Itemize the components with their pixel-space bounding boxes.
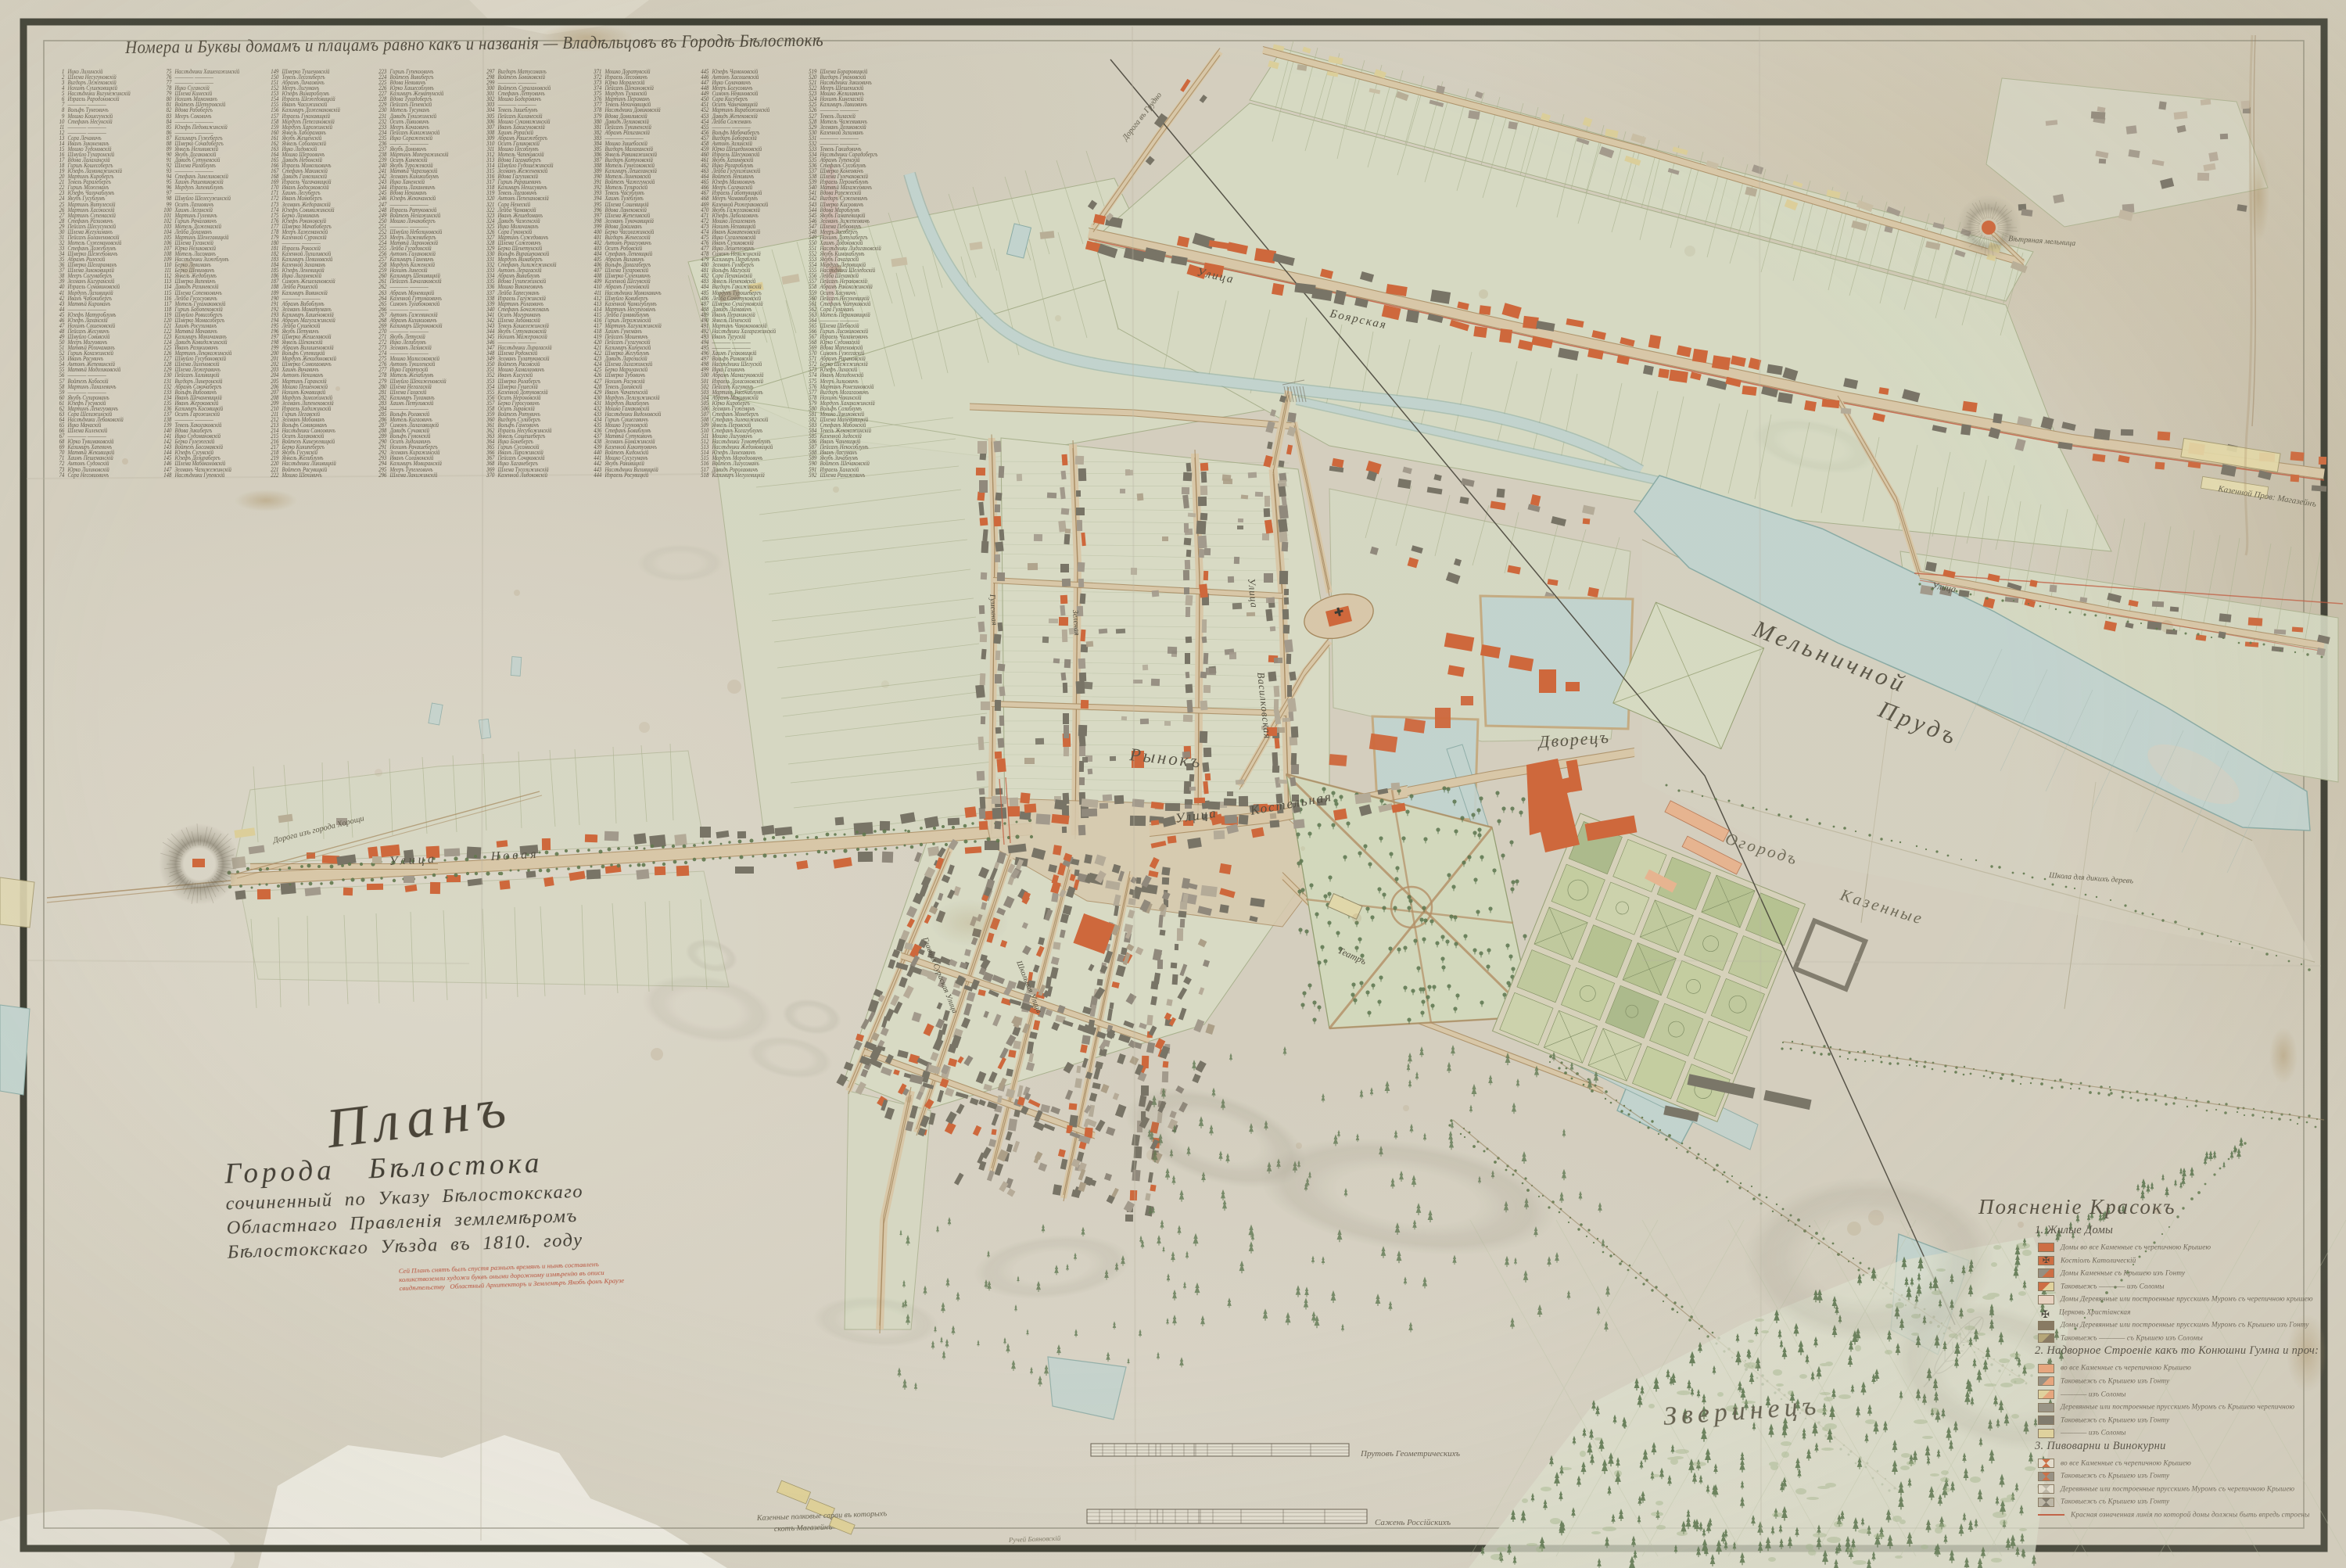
svg-text:Прутовъ Геометрическихъ: Прутовъ Геометрическихъ [1360, 1449, 1460, 1459]
svg-text:Дворецъ: Дворецъ [1537, 727, 1611, 752]
svg-text:Новая: Новая [490, 848, 540, 863]
svg-text:Сажень Россійскихъ: Сажень Россійскихъ [1375, 1518, 1451, 1527]
svg-text:Казенные: Казенные [1838, 885, 1926, 929]
svg-text:Улица: Улица [389, 852, 437, 868]
svg-text:Казенные полковые сараи въ кот: Казенные полковые сараи въ которыхъ [756, 1509, 888, 1523]
svg-text:скотъ Магазейнъ: скотъ Магазейнъ [774, 1523, 833, 1534]
svg-text:Ручей Бояновскій: Ручей Бояновскій [1008, 1534, 1061, 1544]
svg-text:Зеленая: Зеленая [1071, 609, 1081, 636]
svg-text:Вѣтряная мельница: Вѣтряная мельница [2008, 235, 2076, 248]
